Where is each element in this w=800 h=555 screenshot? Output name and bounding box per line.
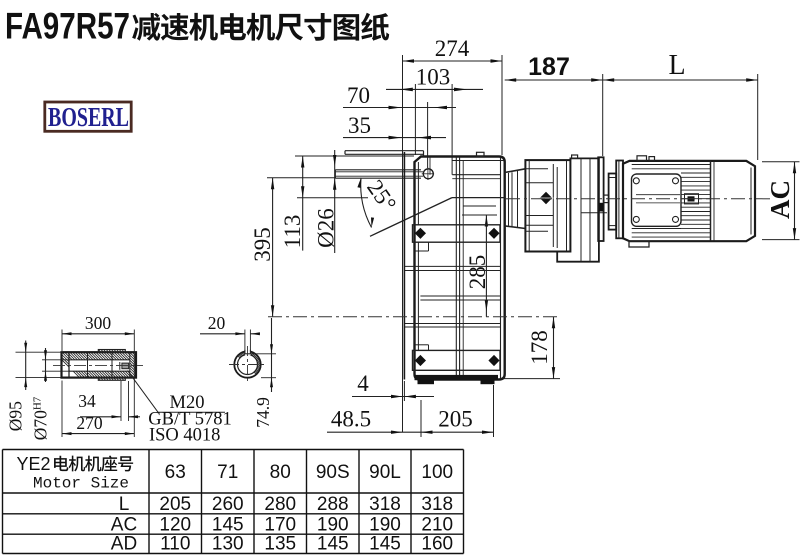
svg-text:205: 205 xyxy=(159,494,191,515)
svg-text:160: 160 xyxy=(421,534,453,555)
svg-text:300: 300 xyxy=(85,313,112,333)
svg-text:260: 260 xyxy=(212,494,244,515)
svg-text:280: 280 xyxy=(264,494,296,515)
svg-text:AC: AC xyxy=(111,515,137,536)
svg-text:90L: 90L xyxy=(369,462,401,483)
svg-text:210: 210 xyxy=(421,515,453,536)
svg-text:Ø95: Ø95 xyxy=(6,401,26,431)
svg-text:145: 145 xyxy=(369,534,401,555)
svg-text:120: 120 xyxy=(159,515,191,536)
svg-text:74.9: 74.9 xyxy=(253,397,273,428)
svg-text:80: 80 xyxy=(270,462,291,483)
svg-text:90S: 90S xyxy=(316,462,350,483)
svg-text:190: 190 xyxy=(317,515,349,536)
svg-text:110: 110 xyxy=(160,534,190,555)
svg-text:103: 103 xyxy=(416,65,451,90)
svg-text:145: 145 xyxy=(212,515,244,536)
svg-text:20: 20 xyxy=(208,313,226,333)
svg-text:270: 270 xyxy=(76,413,103,433)
svg-text:YE2: YE2 xyxy=(17,453,51,474)
svg-text:48.5: 48.5 xyxy=(331,407,371,432)
svg-text:4: 4 xyxy=(357,371,369,396)
svg-text:205: 205 xyxy=(438,407,473,432)
svg-text:70: 70 xyxy=(347,83,370,108)
svg-text:Ø26: Ø26 xyxy=(314,208,339,248)
svg-text:113: 113 xyxy=(280,215,305,249)
svg-text:395: 395 xyxy=(250,227,275,262)
svg-text:35: 35 xyxy=(348,113,371,138)
svg-text:145: 145 xyxy=(317,534,349,555)
svg-text:187: 187 xyxy=(528,53,570,81)
svg-text:318: 318 xyxy=(369,494,401,515)
svg-text:L: L xyxy=(668,50,685,81)
svg-text:AD: AD xyxy=(111,534,137,555)
svg-text:178: 178 xyxy=(527,330,552,365)
svg-text:FA97R57: FA97R57 xyxy=(5,6,130,47)
svg-text:BOSERL: BOSERL xyxy=(48,101,129,132)
svg-text:34: 34 xyxy=(78,391,96,411)
svg-text:288: 288 xyxy=(317,494,349,515)
svg-text:AC: AC xyxy=(765,180,795,219)
svg-text:318: 318 xyxy=(421,494,453,515)
svg-text:Motor Size: Motor Size xyxy=(33,475,129,493)
svg-text:190: 190 xyxy=(369,515,401,536)
svg-text:ISO 4018: ISO 4018 xyxy=(149,426,220,446)
svg-text:100: 100 xyxy=(421,462,453,483)
svg-text:170: 170 xyxy=(264,515,296,536)
svg-text:63: 63 xyxy=(165,462,186,483)
svg-text:L: L xyxy=(119,494,130,515)
svg-text:135: 135 xyxy=(264,534,296,555)
svg-text:285: 285 xyxy=(465,255,490,290)
svg-text:130: 130 xyxy=(212,534,244,555)
svg-text:71: 71 xyxy=(217,462,238,483)
svg-text:274: 274 xyxy=(435,36,470,61)
